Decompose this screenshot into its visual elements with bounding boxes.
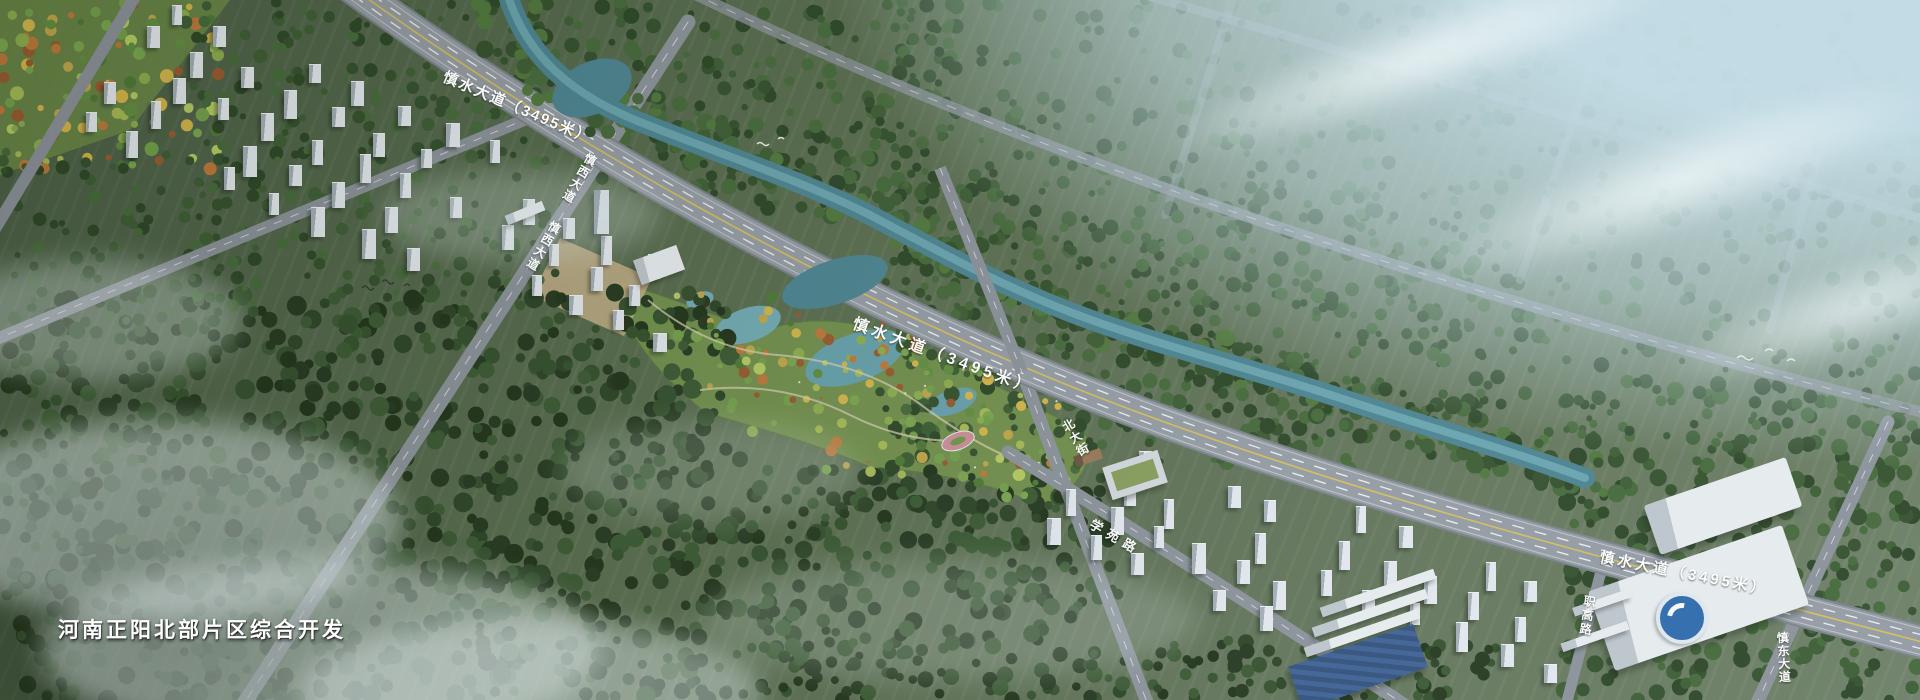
building-tower [569, 295, 583, 316]
building-tower [421, 149, 432, 168]
building-tower [269, 193, 280, 215]
building-tower [1228, 486, 1241, 507]
building-tower [549, 244, 560, 265]
building-tower [351, 81, 364, 106]
building-tower [407, 248, 420, 271]
building-tower [1399, 526, 1412, 548]
building-tower [601, 236, 612, 266]
aerial-masterplan-render: 慎水大道（3495米） 慎水大道（3495米） 慎水大道（3495米） 慎西大道… [0, 0, 1920, 700]
building-tower [1273, 581, 1286, 611]
building-tower [289, 165, 302, 186]
building-tower [312, 140, 322, 165]
project-title: 河南正阳北部片区综合开发 [58, 614, 346, 644]
building-tower [1111, 507, 1125, 535]
building-tower [362, 229, 376, 260]
building-tower [151, 101, 161, 129]
roof-logo-emblem [1656, 592, 1708, 644]
building-tower [243, 146, 257, 177]
building-tower [190, 52, 203, 78]
building-tower [241, 67, 254, 87]
building-tower [373, 133, 385, 157]
building-tower [1321, 570, 1331, 596]
building-tower [147, 26, 161, 48]
building-tower [86, 112, 97, 132]
building-tower [213, 26, 226, 47]
building-tower [1486, 562, 1496, 592]
building-tower [104, 82, 116, 104]
building-tower [224, 167, 235, 189]
building-tower [532, 275, 543, 296]
building-tower [385, 207, 398, 233]
building-tower [1544, 664, 1557, 683]
building-tower [332, 182, 344, 208]
building-tower [261, 113, 274, 141]
building-tower [450, 197, 461, 218]
building-tower [1066, 489, 1077, 516]
building-tower [1154, 526, 1165, 547]
building-tower [1515, 617, 1526, 643]
building-tower [1356, 506, 1366, 533]
building-tower [1456, 622, 1468, 652]
building-tower [1260, 606, 1273, 631]
building-tower [311, 207, 325, 238]
building-tower [1237, 560, 1250, 584]
building-tower [1213, 590, 1225, 611]
building-tower [1192, 543, 1206, 574]
building-tower [1131, 553, 1144, 575]
building-tower [1164, 499, 1174, 529]
building-tower [563, 218, 575, 240]
building-tower [1524, 581, 1536, 602]
building-tower [332, 107, 346, 127]
building-tower [172, 5, 182, 25]
building-tower [591, 267, 603, 290]
building-tower [400, 173, 410, 199]
building-tower [309, 64, 321, 84]
building-tower [1339, 541, 1350, 570]
building-tower [126, 131, 138, 158]
school-courtyard-building [1102, 450, 1168, 500]
building-tower [1255, 533, 1266, 564]
building-tower [360, 154, 371, 183]
building-tower [502, 225, 513, 250]
building-tower [1501, 644, 1514, 666]
school-slab [1073, 448, 1103, 467]
building-tower [1468, 592, 1478, 619]
building-tower [173, 78, 186, 103]
building-tower [613, 310, 624, 330]
commercial-slab [633, 245, 685, 285]
building-tower [446, 123, 459, 147]
office-tower [594, 190, 609, 234]
building-tower [218, 98, 230, 120]
building-tower [1264, 500, 1276, 522]
building-tower [1091, 535, 1103, 561]
building-tower [629, 285, 640, 305]
building-tower [490, 140, 500, 164]
building-tower [653, 333, 667, 352]
buildings-layer [0, 0, 1920, 700]
building-tower [398, 106, 411, 126]
building-tower [284, 90, 297, 119]
building-tower [1047, 518, 1061, 545]
